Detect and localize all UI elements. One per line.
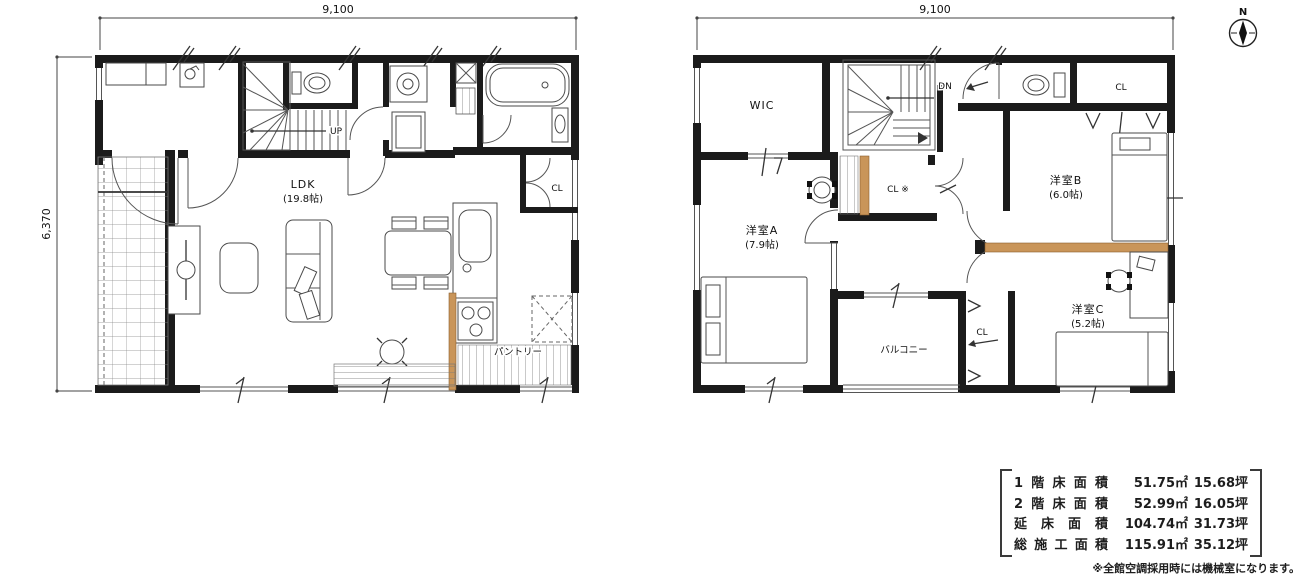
bed-c-icon bbox=[1056, 332, 1168, 386]
bath-vanity-icon bbox=[552, 108, 568, 142]
room-a-size-label: (7.9帖) bbox=[745, 238, 779, 251]
row-sqm: 52.99㎡ bbox=[1108, 493, 1188, 512]
row-sqm: 51.75㎡ bbox=[1108, 472, 1188, 491]
row-tsubo: 16.05坪 bbox=[1188, 493, 1248, 512]
compass-north-icon: N bbox=[1230, 7, 1257, 47]
row-label: 1階床面積 bbox=[1014, 472, 1108, 491]
toilet-2f-icon bbox=[1023, 75, 1049, 95]
closet-2f-mid-label: CL ※ bbox=[887, 185, 909, 195]
pantry-label: パントリー bbox=[494, 347, 542, 358]
balcony: バルコニー bbox=[843, 283, 960, 393]
floor2-window-ticks bbox=[767, 46, 1098, 403]
area-table-note: ※全館空調採用時には機械室になります。 bbox=[995, 560, 1300, 576]
area-table: 1階床面積 51.75㎡ 15.68坪 2階床面積 52.99㎡ 16.05坪 … bbox=[1000, 469, 1262, 557]
row-tsubo: 35.12坪 bbox=[1188, 534, 1248, 553]
floorplan-page: { "floor1": { "width_dim": "9,100", "hei… bbox=[0, 0, 1300, 580]
toilet-1f-icon bbox=[292, 72, 330, 94]
dimension-1f-width: 9,100 bbox=[98, 3, 577, 50]
balcony-label: バルコニー bbox=[880, 345, 927, 356]
wic-room: WIC bbox=[748, 99, 788, 176]
bathtub-icon bbox=[486, 64, 569, 106]
row-sqm: 104.74㎡ bbox=[1108, 513, 1188, 532]
closet-2f-bottom: CL bbox=[968, 300, 998, 382]
dim-1f-height-label: 6,370 bbox=[40, 208, 53, 240]
floor1-plan: UP bbox=[95, 46, 579, 403]
row-label: 延床面積 bbox=[1014, 513, 1108, 532]
kitchen-sink-icon bbox=[459, 210, 491, 262]
washroom-cabinet bbox=[392, 112, 425, 152]
dn-label: DN bbox=[938, 82, 952, 92]
row-tsubo: 15.68坪 bbox=[1188, 472, 1248, 491]
table-row: 2階床面積 52.99㎡ 16.05坪 bbox=[1014, 493, 1248, 514]
toilet-2f bbox=[963, 63, 1065, 99]
closet-2f-bottom-label: CL bbox=[976, 328, 987, 338]
tv-board bbox=[168, 226, 200, 314]
stool bbox=[377, 338, 407, 366]
room-b: 洋室B (6.0帖) bbox=[1049, 133, 1167, 241]
floor2-plan: WIC DN bbox=[693, 46, 1183, 403]
closet-1f: CL bbox=[526, 158, 563, 207]
up-label: UP bbox=[330, 127, 343, 137]
compass-north-label: N bbox=[1239, 7, 1247, 18]
sofa bbox=[286, 220, 332, 322]
table-row: 総施工面積 115.91㎡ 35.12坪 bbox=[1014, 534, 1248, 555]
table-bracket-right bbox=[1250, 469, 1262, 557]
entrance-basin-icon bbox=[180, 63, 204, 87]
closet-1f-label: CL bbox=[551, 184, 562, 194]
room-a-label: 洋室A bbox=[746, 223, 779, 237]
ldk-label: LDK bbox=[291, 178, 316, 191]
closet-2f-top-label: CL bbox=[1115, 83, 1126, 93]
kitchen-counter bbox=[453, 203, 497, 343]
room-c-size-label: (5.2帖) bbox=[1071, 317, 1105, 330]
room-c: 洋室C (5.2帖) bbox=[1056, 252, 1168, 386]
table-bracket-left bbox=[1000, 469, 1012, 557]
wood-deck-bench bbox=[334, 364, 455, 386]
room-a: 洋室A (7.9帖) bbox=[701, 208, 838, 363]
chair-icon bbox=[1106, 270, 1132, 292]
dim-1f-width-label: 9,100 bbox=[322, 3, 354, 16]
dim-2f-width-label: 9,100 bbox=[919, 3, 951, 16]
washing-machine-icon bbox=[390, 66, 427, 102]
area-table-rows: 1階床面積 51.75㎡ 15.68坪 2階床面積 52.99㎡ 16.05坪 … bbox=[1014, 472, 1248, 554]
row-label: 総施工面積 bbox=[1014, 534, 1108, 553]
coffee-table bbox=[220, 243, 258, 293]
bed-b-icon bbox=[1112, 133, 1167, 241]
room-c-label: 洋室C bbox=[1072, 302, 1105, 316]
row-sqm: 115.91㎡ bbox=[1108, 534, 1188, 553]
room-b-size-label: (6.0帖) bbox=[1049, 188, 1083, 201]
table-row: 1階床面積 51.75㎡ 15.68坪 bbox=[1014, 472, 1248, 493]
dimension-1f-height: 6,370 bbox=[40, 55, 92, 392]
row-tsubo: 31.73坪 bbox=[1188, 513, 1248, 532]
desk-icon bbox=[1130, 252, 1168, 318]
ldk-size-label: (19.8帖) bbox=[283, 192, 323, 205]
entrance-porch bbox=[98, 157, 168, 385]
room-b-label: 洋室B bbox=[1050, 173, 1083, 187]
dining-set bbox=[385, 217, 451, 289]
accent-counter bbox=[985, 243, 1168, 252]
closet-2f-mid: CL ※ bbox=[840, 156, 963, 215]
dimension-2f-width: 9,100 bbox=[695, 3, 1174, 50]
row-label: 2階床面積 bbox=[1014, 493, 1108, 512]
bed-a-icon bbox=[701, 277, 807, 363]
wic-label: WIC bbox=[750, 99, 775, 112]
table-row: 延床面積 104.74㎡ 31.73坪 bbox=[1014, 513, 1248, 534]
staircase-2f: DN bbox=[843, 60, 952, 150]
